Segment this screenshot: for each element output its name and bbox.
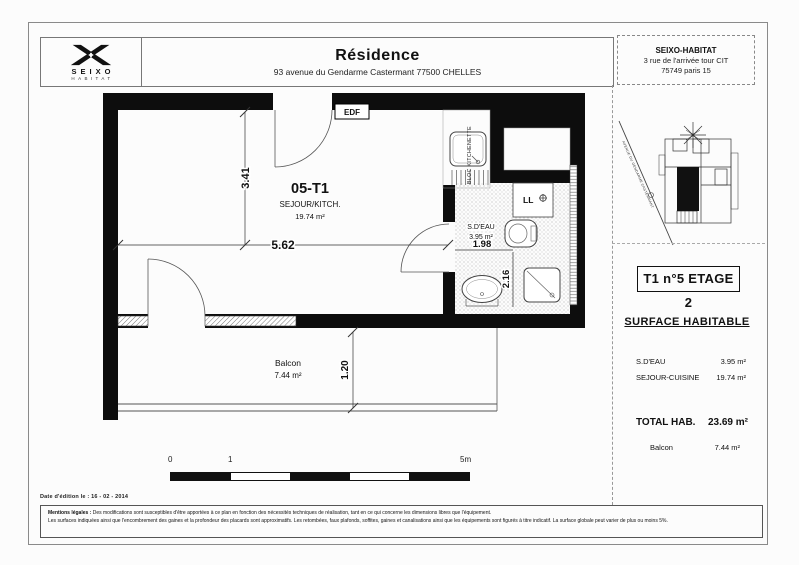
surface-row-label: S.D'EAU xyxy=(636,357,665,366)
toilet xyxy=(505,220,537,247)
legal-label: Mentions légales : xyxy=(48,510,91,516)
title-cell: Résidence 93 avenue du Gendarme Casterma… xyxy=(142,38,613,86)
company-address-box: SEIXO-HABITAT 3 rue de l'arrivée tour CI… xyxy=(617,35,755,85)
floor-plan-drawing: EDF BLOC KITCHENETTE LL xyxy=(35,85,615,480)
duct-shaft xyxy=(504,128,570,170)
unit-floor-box: T1 n°5 ETAGE 2 xyxy=(637,266,740,292)
scale-bar-segments xyxy=(170,472,470,481)
room-label: SEJOUR/KITCH. xyxy=(280,200,341,209)
scale-tick-1: 1 xyxy=(228,455,232,464)
floor-plan-sheet: { "header": { "logo": {"brand_top": "SEI… xyxy=(0,0,799,565)
scale-bar: 0 1 5m xyxy=(170,455,470,483)
wall-openings xyxy=(148,93,455,328)
panel-separator xyxy=(612,85,613,505)
entry-door-arc xyxy=(275,110,332,167)
legal-line-2: Les surfaces indiquées ainsi que l'encom… xyxy=(48,517,755,525)
unit-label: 05-T1 xyxy=(291,181,329,197)
room-area: 19.74 m² xyxy=(295,212,325,221)
total-row: TOTAL HAB. 23.69 m² xyxy=(636,417,748,428)
washing-machine: LL xyxy=(513,183,553,217)
logo-brand-bottom: HABITAT xyxy=(68,76,113,81)
company-name: SEIXO-HABITAT xyxy=(655,46,716,55)
surface-row-value: 3.95 m² xyxy=(721,357,746,366)
bath-label: S.D'EAU xyxy=(467,224,494,231)
residence-title: Résidence xyxy=(335,47,420,65)
site-plan: AVENUE DU GENDARME CASTERMANT xyxy=(615,95,763,253)
surface-row-label: SEJOUR-CUISINE xyxy=(636,373,699,382)
legal-line-1: Mentions légales : Des modifications son… xyxy=(48,509,755,517)
edition-date: Date d'édition le : 16 - 02 - 2014 xyxy=(40,494,128,500)
residence-address: 93 avenue du Gendarme Castermant 77500 C… xyxy=(274,67,481,77)
stairs xyxy=(677,211,697,223)
dim-balcony-depth: 1.20 xyxy=(340,360,351,380)
balcony-row-label: Balcon xyxy=(650,443,673,452)
balcony-area: 7.44 m² xyxy=(274,371,301,380)
logo-cell: SEIXO HABITAT xyxy=(41,38,142,86)
panel-horizontal-separator xyxy=(612,243,765,244)
dim-room-width: 5.62 xyxy=(271,238,295,252)
scale-tick-5m: 5m xyxy=(460,455,471,464)
dim-room-height: 3.41 xyxy=(240,167,252,188)
surface-row-value: 19.74 m² xyxy=(716,373,746,382)
surface-row-sdeau: S.D'EAU 3.95 m² xyxy=(636,357,746,366)
kitchenette: BLOC KITCHENETTE xyxy=(443,110,490,188)
bathroom-door-arc xyxy=(401,224,449,272)
total-value: 23.69 m² xyxy=(708,417,748,428)
scale-tick-0: 0 xyxy=(168,455,172,464)
shower xyxy=(524,268,560,302)
legal-text-1: Des modifications sont susceptibles d'êt… xyxy=(93,510,492,516)
balcony-door-arc xyxy=(148,259,205,316)
total-label: TOTAL HAB. xyxy=(636,417,695,428)
bath-area: 3.95 m² xyxy=(469,234,493,241)
edf-label: EDF xyxy=(344,108,360,117)
balcony-row: Balcon 7.44 m² xyxy=(650,443,740,452)
street-label: AVENUE DU GENDARME CASTERMANT xyxy=(621,140,654,208)
balcony-outline xyxy=(118,328,497,411)
seixo-x-logo-icon xyxy=(64,44,118,66)
surface-row-sejour: SEJOUR-CUISINE 19.74 m² xyxy=(636,373,746,382)
edf-panel: EDF xyxy=(335,104,369,119)
surface-table-title: SURFACE HABITABLE xyxy=(617,316,757,328)
washer-label: LL xyxy=(523,195,533,205)
kitchenette-label: BLOC KITCHENETTE xyxy=(467,126,473,184)
balcony-label: Balcon xyxy=(275,358,301,368)
dim-bath-height: 2.16 xyxy=(501,270,512,289)
logo-brand-top: SEIXO xyxy=(68,67,115,76)
company-address-1: 3 rue de l'arrivée tour CIT xyxy=(644,56,729,65)
balcony-row-value: 7.44 m² xyxy=(715,443,740,452)
header: SEIXO HABITAT Résidence 93 avenue du Gen… xyxy=(40,37,614,87)
highlighted-unit xyxy=(677,167,699,211)
company-address-2: 75749 paris 15 xyxy=(661,66,711,75)
legal-notice: Mentions légales : Des modifications son… xyxy=(40,505,763,538)
